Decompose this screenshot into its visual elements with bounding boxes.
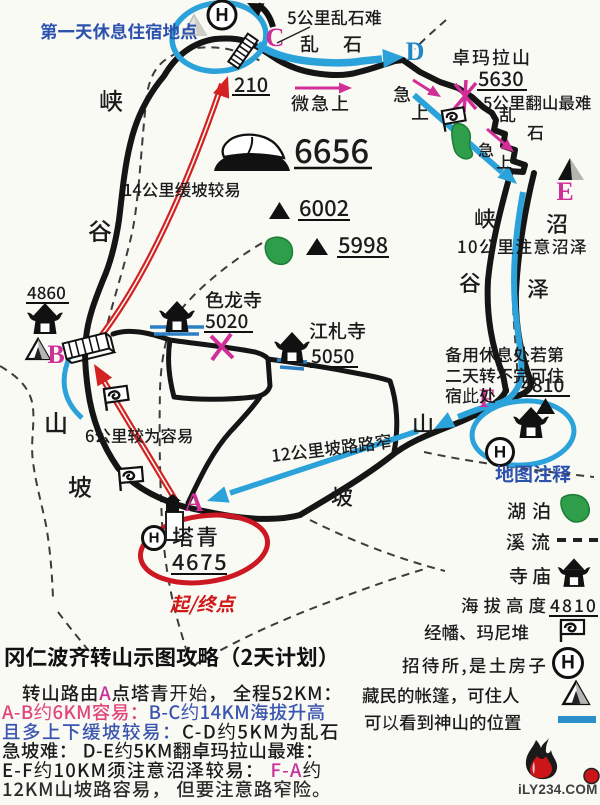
svg-text:寺庙: 寺庙	[509, 562, 555, 589]
svg-text:溪流: 溪流	[506, 528, 556, 555]
svg-text:藏民的帐篷，可住人: 藏民的帐篷，可住人	[362, 683, 520, 708]
svg-text:湖泊: 湖泊	[507, 497, 557, 524]
svg-text:石: 石	[527, 119, 544, 144]
svg-text:上: 上	[411, 99, 429, 125]
svg-text:H: H	[149, 530, 160, 547]
svg-text:5050: 5050	[311, 342, 354, 369]
svg-text:4810: 4810	[550, 593, 598, 618]
svg-text:石: 石	[343, 30, 362, 57]
svg-text:E: E	[556, 177, 573, 206]
svg-text:乱: 乱	[300, 30, 319, 57]
svg-text:起/终点: 起/终点	[170, 590, 237, 617]
svg-text:210: 210	[234, 69, 268, 98]
svg-text:江札寺: 江札寺	[309, 317, 366, 344]
svg-text:宿此处: 宿此处	[445, 382, 496, 407]
svg-text:急: 急	[478, 137, 494, 161]
svg-text:A: A	[185, 488, 204, 517]
svg-text:坡: 坡	[68, 468, 92, 503]
svg-text:上: 上	[496, 149, 512, 173]
svg-text:B: B	[47, 340, 64, 369]
svg-text:峡: 峡	[474, 202, 496, 234]
svg-text:H: H	[561, 653, 575, 674]
svg-text:坡: 坡	[331, 480, 353, 512]
svg-text:急: 急	[393, 81, 411, 107]
svg-text:地图注释: 地图注释	[495, 460, 571, 487]
svg-text:微急上: 微急上	[291, 90, 351, 116]
svg-text:H: H	[494, 443, 506, 462]
svg-text:H: H	[216, 5, 229, 25]
svg-text:第一天休息住宿地点: 第一天休息住宿地点	[40, 19, 198, 44]
svg-text:4860: 4860	[27, 279, 66, 304]
svg-text:5公里乱石难: 5公里乱石难	[287, 4, 382, 29]
svg-text:谷: 谷	[459, 266, 481, 298]
svg-text:4810: 4810	[521, 371, 564, 398]
svg-text:5630: 5630	[478, 63, 524, 92]
svg-text:招待所,是土房子: 招待所,是土房子	[402, 653, 548, 678]
svg-text:12KM山坡路容易， 但要注意路窄险。: 12KM山坡路容易， 但要注意路窄险。	[2, 776, 331, 800]
svg-text:谷: 谷	[88, 212, 112, 247]
svg-text:5998: 5998	[338, 228, 388, 260]
svg-text:10公里注意沼泽: 10公里注意沼泽	[457, 233, 588, 258]
svg-text:泽: 泽	[527, 272, 549, 304]
svg-text:乱: 乱	[499, 101, 516, 126]
svg-text:6002: 6002	[299, 191, 349, 223]
svg-text:6公里较为容易: 6公里较为容易	[85, 423, 193, 447]
svg-text:14公里缓坡较易: 14公里缓坡较易	[123, 177, 241, 201]
svg-text:D: D	[406, 37, 425, 66]
svg-text:冈仁波齐转山示图攻略（2天计划）: 冈仁波齐转山示图攻略（2天计划）	[4, 641, 339, 672]
svg-text:iLY234.COM: iLY234.COM	[518, 782, 598, 797]
svg-text:山: 山	[44, 404, 68, 439]
svg-text:峡: 峡	[99, 82, 123, 117]
svg-text:海拔高度: 海拔高度	[461, 593, 551, 618]
svg-text:6656: 6656	[294, 125, 369, 173]
svg-text:C: C	[266, 23, 285, 52]
svg-text:5020: 5020	[205, 307, 248, 334]
svg-text:4675: 4675	[172, 545, 228, 577]
svg-text:山: 山	[412, 407, 434, 439]
svg-text:经幡、玛尼堆: 经幡、玛尼堆	[424, 620, 529, 645]
svg-text:可以看到神山的位置: 可以看到神山的位置	[364, 710, 522, 735]
